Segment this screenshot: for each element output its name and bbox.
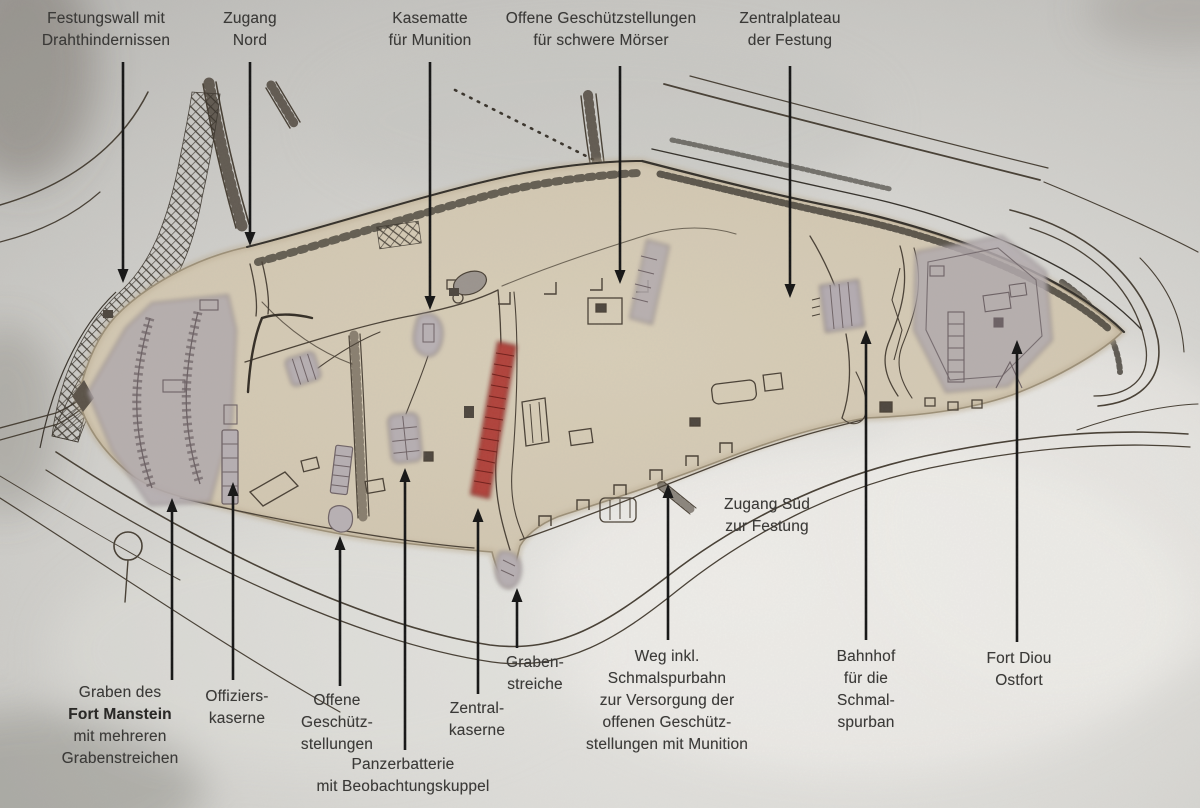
label-line: stellungen mit Munition: [586, 734, 748, 756]
label-offizierskaserne: Offiziers- kaserne: [205, 686, 268, 730]
label-line: kaserne: [449, 720, 505, 742]
label-graben-manstein: Graben des Fort Manstein mit mehreren Gr…: [62, 682, 179, 770]
label-line: für die: [837, 668, 896, 690]
label-offene-moerser: Offene Geschützstellungen für schwere Mö…: [506, 8, 696, 52]
label-line: zur Versorgung der: [586, 690, 748, 712]
label-offene-geschuetz: Offene Geschütz- stellungen: [301, 690, 373, 756]
label-line: für Munition: [389, 30, 472, 52]
label-line: Fort Diou: [986, 648, 1051, 670]
label-line: Schmal-: [837, 690, 896, 712]
label-line: Festungswall mit: [42, 8, 170, 30]
label-line: Offene: [301, 690, 373, 712]
label-bahnhof: Bahnhof für die Schmal- spurban: [837, 646, 896, 734]
label-line: Geschütz-: [301, 712, 373, 734]
label-line: mit Beobachtungskuppel: [316, 776, 489, 798]
label-line: Weg inkl.: [586, 646, 748, 668]
label-line: Ostfort: [986, 670, 1051, 692]
fortress-map-figure: Festungswall mit Drahthindernissen Zugan…: [0, 0, 1200, 808]
label-line: Nord: [223, 30, 276, 52]
label-festungswall: Festungswall mit Drahthindernissen: [42, 8, 170, 52]
label-line: stellungen: [301, 734, 373, 756]
label-line: kaserne: [205, 708, 268, 730]
label-line: Panzerbatterie: [316, 754, 489, 776]
label-line: Zentral-: [449, 698, 505, 720]
label-line: Bahnhof: [837, 646, 896, 668]
label-line: Graben des: [62, 682, 179, 704]
label-weg-schmalspurbahn: Weg inkl. Schmalspurbahn zur Versorgung …: [586, 646, 748, 756]
label-grabenstreiche: Graben- streiche: [506, 652, 564, 696]
label-line: Offene Geschützstellungen: [506, 8, 696, 30]
label-line: Fort Manstein: [62, 704, 179, 726]
label-panzerbatterie: Panzerbatterie mit Beobachtungskuppel: [316, 754, 489, 798]
label-zugang-sued: Zugang Süd zur Festung: [724, 494, 810, 538]
label-zentralkaserne: Zentral- kaserne: [449, 698, 505, 742]
label-zugang-nord: Zugang Nord: [223, 8, 276, 52]
label-line: mit mehreren: [62, 726, 179, 748]
label-line: Offiziers-: [205, 686, 268, 708]
label-line: streiche: [506, 674, 564, 696]
label-line: Grabenstreichen: [62, 748, 179, 770]
label-line: Schmalspurbahn: [586, 668, 748, 690]
label-line: spurban: [837, 712, 896, 734]
label-line: Drahthindernissen: [42, 30, 170, 52]
label-line: Zentralplateau: [739, 8, 840, 30]
label-line: Graben-: [506, 652, 564, 674]
label-zentralplateau: Zentralplateau der Festung: [739, 8, 840, 52]
label-line: offenen Geschütz-: [586, 712, 748, 734]
label-fort-diou: Fort Diou Ostfort: [986, 648, 1051, 692]
label-line: Kasematte: [389, 8, 472, 30]
label-line: Zugang Süd: [724, 494, 810, 516]
label-line: Zugang: [223, 8, 276, 30]
label-line: für schwere Mörser: [506, 30, 696, 52]
label-kasematte: Kasematte für Munition: [389, 8, 472, 52]
label-line: der Festung: [739, 30, 840, 52]
label-line: zur Festung: [724, 516, 810, 538]
